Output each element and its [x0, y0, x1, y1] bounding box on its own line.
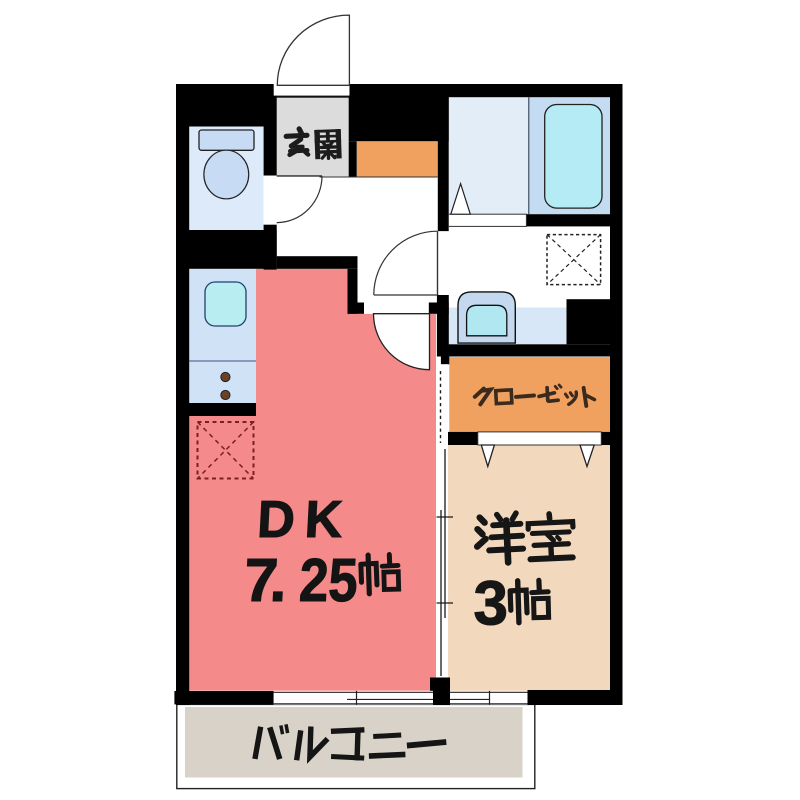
svg-text:25: 25 — [298, 547, 359, 616]
svg-text:3: 3 — [474, 570, 508, 639]
svg-text:.: . — [268, 546, 289, 614]
svg-text:K: K — [303, 491, 344, 549]
svg-text:D: D — [256, 491, 297, 549]
